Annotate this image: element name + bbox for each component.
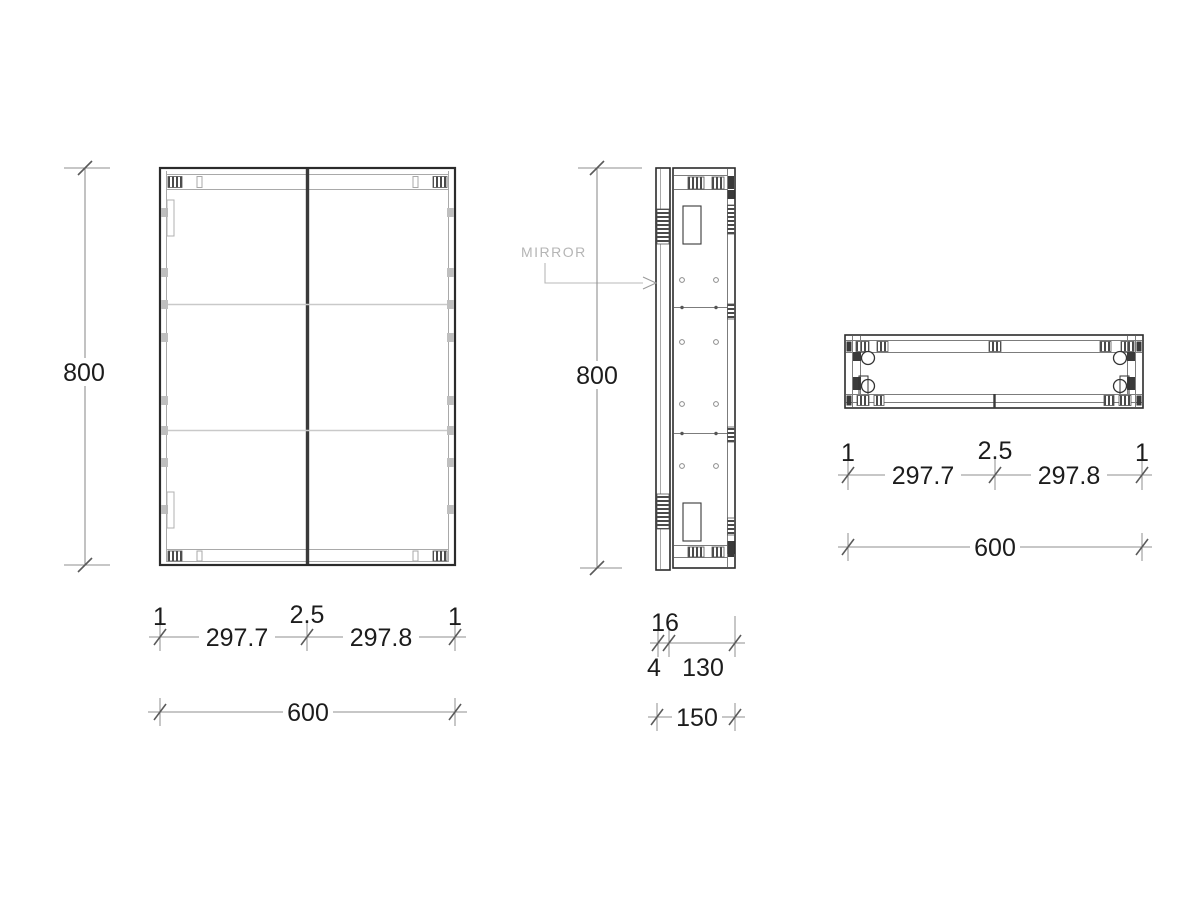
- front-edge-left-label: 1: [153, 603, 167, 631]
- front-dim-partition: 1 2.5 1 297.7 297.8: [149, 601, 466, 652]
- top-view: 1 2.5 1 297.7 297.8 600: [838, 335, 1152, 562]
- side-dim-depth: 150: [648, 703, 745, 732]
- top-dim-partition: 1 2.5 1 297.7 297.8: [838, 437, 1152, 490]
- side-door-thickness-label: 16: [651, 609, 679, 637]
- side-height-label: 800: [576, 362, 618, 390]
- side-carcass: [673, 168, 735, 568]
- front-height-label: 800: [63, 359, 105, 387]
- side-reveal-gap-label: 4: [647, 654, 661, 682]
- front-hinge-plate-top: [167, 200, 174, 236]
- side-depth-label: 150: [676, 704, 718, 732]
- side-door-hinge-block-top: [657, 209, 669, 244]
- front-bottom-mount-block-left: [168, 551, 182, 561]
- front-door-right-label: 297.8: [350, 624, 413, 652]
- front-door-left-label: 297.7: [206, 624, 269, 652]
- front-dim-height: 800: [58, 161, 110, 572]
- top-edge-left-label: 1: [841, 439, 855, 467]
- top-door-right-label: 297.8: [1038, 462, 1101, 490]
- side-shelf-pin-holes: [680, 278, 719, 469]
- side-dim-detail: 16 4 130: [647, 609, 745, 682]
- mirror-label: MIRROR: [521, 244, 587, 260]
- front-hinge-plate-bottom: [167, 492, 174, 528]
- front-edge-right-label: 1: [448, 603, 462, 631]
- top-door-left-label: 297.7: [892, 462, 955, 490]
- top-dim-width: 600: [838, 533, 1152, 562]
- front-top-mount-block-left: [168, 177, 182, 188]
- side-door-hinge-block-bottom: [657, 494, 669, 529]
- front-doors: [167, 169, 449, 564]
- front-dim-width: 600: [148, 698, 467, 727]
- drawing-canvas: 800 1 2.5 1 297.7 297.8 600: [0, 0, 1200, 900]
- front-bottom-mount-block-right: [433, 551, 447, 561]
- top-width-label: 600: [974, 534, 1016, 562]
- front-width-label: 600: [287, 699, 329, 727]
- front-top-mount-block-right: [433, 177, 447, 188]
- side-carcass-depth-label: 130: [682, 654, 724, 682]
- side-mirror-door: [656, 168, 670, 570]
- mirror-leader-arrow: [643, 277, 656, 289]
- top-edge-right-label: 1: [1135, 439, 1149, 467]
- top-doors: [846, 394, 1142, 408]
- side-view: MIRROR 800 16 4 130: [521, 161, 745, 732]
- mirror-annotation: MIRROR: [521, 244, 656, 289]
- side-dim-height: 800: [572, 161, 642, 575]
- front-view: 800 1 2.5 1 297.7 297.8 600: [58, 161, 467, 727]
- top-hinges: [859, 352, 1129, 397]
- cabinet-drawing: 800 1 2.5 1 297.7 297.8 600: [0, 0, 1200, 900]
- front-center-gap-label: 2.5: [290, 601, 325, 629]
- mirror-leader-line: [545, 263, 645, 283]
- top-center-gap-label: 2.5: [978, 437, 1013, 465]
